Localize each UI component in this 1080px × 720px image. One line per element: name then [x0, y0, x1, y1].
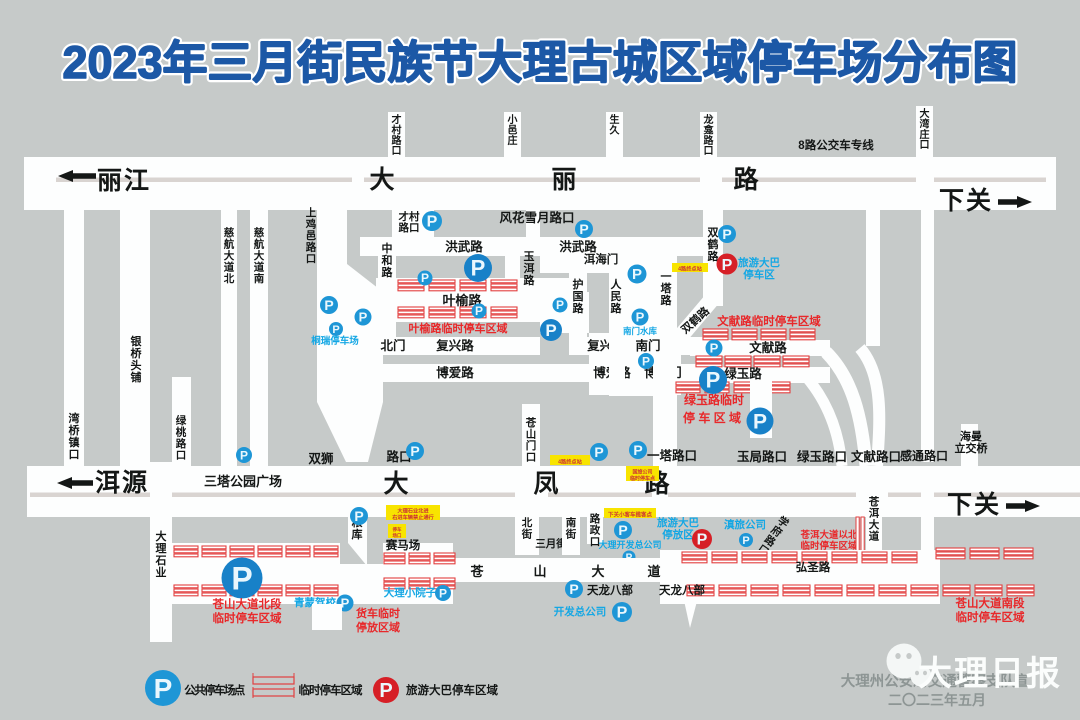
svg-text:P: P [753, 410, 767, 433]
svg-text:右进车辆禁止通行: 右进车辆禁止通行 [392, 513, 434, 521]
svg-text:人民路: 人民路 [611, 277, 623, 315]
svg-text:龙龛路口: 龙龛路口 [703, 113, 715, 157]
svg-text:大理日报: 大理日报 [918, 655, 1062, 693]
svg-text:P: P [427, 214, 438, 231]
svg-text:苍山门口: 苍山门口 [525, 416, 537, 464]
svg-text:8路公交车专线: 8路公交车专线 [798, 138, 874, 152]
svg-text:下关: 下关 [947, 491, 1001, 519]
svg-text:停放区域: 停放区域 [356, 620, 400, 634]
svg-text:湾桥镇口: 湾桥镇口 [69, 411, 81, 461]
svg-text:玉局路口: 玉局路口 [737, 449, 787, 464]
svg-text:旅游大巴停车区域: 旅游大巴停车区域 [406, 683, 498, 697]
svg-text:复兴路: 复兴路 [435, 338, 474, 353]
svg-text:国旅公司: 国旅公司 [632, 468, 652, 475]
svg-text:弘圣路: 弘圣路 [796, 560, 831, 574]
svg-text:4路终点站: 4路终点站 [678, 265, 702, 273]
svg-text:风花雪月路口: 风花雪月路口 [499, 210, 574, 225]
svg-text:丽: 丽 [551, 166, 576, 194]
svg-text:P: P [618, 522, 627, 538]
svg-text:一塔路口: 一塔路口 [647, 448, 697, 463]
svg-text:绿桃路口: 绿桃路口 [176, 414, 187, 462]
svg-text:双鹤路: 双鹤路 [708, 226, 720, 263]
svg-text:才村路口: 才村路口 [392, 113, 403, 157]
svg-text:上鸡邑路口: 上鸡邑路口 [305, 206, 317, 265]
svg-text:二〇二三年五月: 二〇二三年五月 [888, 692, 986, 708]
svg-text:旅游大巴: 旅游大巴 [657, 516, 699, 529]
svg-text:停车区: 停车区 [743, 268, 775, 281]
svg-text:P: P [594, 444, 603, 460]
svg-text:临时停车点: 临时停车点 [630, 475, 655, 482]
svg-text:停 车 区 域: 停 车 区 域 [683, 410, 741, 425]
svg-text:P: P [742, 535, 749, 547]
svg-text:中和路: 中和路 [382, 241, 394, 279]
svg-text:路口: 路口 [399, 221, 420, 234]
svg-text:一塔路: 一塔路 [661, 271, 673, 307]
svg-text:P: P [697, 532, 708, 549]
svg-text:P: P [359, 310, 368, 325]
svg-text:苍山大道南段: 苍山大道南段 [955, 596, 1025, 610]
svg-text:绿玉路: 绿玉路 [724, 366, 762, 381]
svg-text:P: P [569, 581, 578, 597]
svg-text:滇旅公司: 滇旅公司 [724, 518, 766, 531]
svg-text:慈航大道北: 慈航大道北 [224, 226, 235, 285]
svg-text:银桥头铺: 银桥头铺 [131, 334, 143, 384]
svg-text:南街: 南街 [565, 516, 577, 541]
svg-text:下关小客车揽客点: 下关小客车揽客点 [608, 510, 653, 518]
svg-text:立交桥: 立交桥 [955, 441, 989, 455]
svg-text:P: P [154, 673, 173, 704]
svg-text:P: P [722, 226, 731, 242]
svg-text:P: P [379, 680, 392, 702]
svg-text:博爱路: 博爱路 [436, 365, 474, 380]
svg-text:南门水库: 南门水库 [623, 326, 658, 336]
svg-text:北门: 北门 [380, 338, 405, 353]
svg-text:P: P [354, 508, 363, 524]
svg-text:大: 大 [591, 564, 604, 579]
svg-text:赛马场: 赛马场 [385, 538, 421, 552]
svg-text:苍洱大道以北: 苍洱大道以北 [799, 529, 858, 541]
svg-text:大湾庄口: 大湾庄口 [920, 107, 930, 151]
svg-text:货车临时: 货车临时 [355, 606, 400, 620]
svg-text:开发总公司: 开发总公司 [554, 605, 607, 618]
svg-text:P: P [636, 310, 645, 325]
svg-text:下关: 下关 [939, 187, 993, 215]
svg-text:文献路: 文献路 [749, 340, 787, 355]
svg-text:P: P [324, 297, 333, 313]
svg-text:公共停车场点: 公共停车场点 [184, 683, 245, 697]
svg-text:P: P [240, 448, 248, 462]
svg-text:洱海门: 洱海门 [584, 252, 619, 266]
svg-text:桐瑞停车场: 桐瑞停车场 [311, 335, 359, 347]
svg-text:洱源: 洱源 [95, 469, 149, 497]
svg-text:P: P [475, 304, 483, 318]
svg-text:南门: 南门 [635, 338, 660, 353]
svg-text:P: P [556, 298, 564, 312]
svg-text:海曼: 海曼 [960, 429, 982, 443]
svg-text:玉洱路: 玉洱路 [524, 250, 536, 287]
svg-text:苍洱大道: 苍洱大道 [868, 495, 880, 543]
svg-text:P: P [642, 354, 650, 368]
svg-text:P: P [471, 256, 486, 281]
svg-text:临时停车区域: 临时停车区域 [299, 683, 363, 697]
svg-text:P: P [722, 257, 733, 274]
svg-text:绿玉路临时: 绿玉路临时 [684, 392, 744, 407]
svg-text:P: P [633, 442, 642, 458]
svg-text:P: P [341, 596, 350, 611]
svg-text:临时停车区域: 临时停车区域 [213, 611, 282, 625]
svg-text:P: P [410, 443, 419, 459]
svg-text:护国路: 护国路 [573, 277, 585, 315]
svg-text:绿玉路口: 绿玉路口 [797, 449, 847, 464]
svg-text:感通路口: 感通路口 [900, 448, 948, 463]
svg-text:2023年三月街民族节大理古城区域停车场分布图: 2023年三月街民族节大理古城区域停车场分布图 [62, 37, 1017, 88]
svg-text:P: P [439, 586, 447, 600]
svg-text:P: P [706, 368, 721, 393]
svg-text:路: 路 [733, 166, 759, 194]
svg-text:双狮: 双狮 [307, 451, 334, 466]
svg-text:道: 道 [647, 564, 660, 579]
svg-text:P: P [231, 560, 252, 596]
svg-text:P: P [421, 271, 429, 285]
svg-text:P: P [632, 266, 642, 283]
svg-text:大理小院子: 大理小院子 [384, 586, 437, 599]
svg-text:旅游大巴: 旅游大巴 [738, 256, 780, 269]
svg-text:洪武路: 洪武路 [559, 239, 597, 254]
svg-text:洪武路: 洪武路 [445, 239, 483, 254]
svg-text:大理石业: 大理石业 [155, 529, 167, 579]
svg-text:P: P [710, 341, 719, 356]
svg-text:山: 山 [533, 564, 546, 579]
svg-text:大理石业北进: 大理石业北进 [397, 506, 429, 514]
svg-text:停放区: 停放区 [662, 528, 694, 541]
svg-text:P: P [332, 324, 339, 336]
svg-text:大理开发总公司: 大理开发总公司 [598, 539, 661, 550]
svg-text:大: 大 [369, 166, 394, 194]
svg-text:三塔公园广场: 三塔公园广场 [204, 474, 282, 489]
svg-text:临时停车区域: 临时停车区域 [956, 610, 1025, 624]
svg-text:小邑庄: 小邑庄 [507, 113, 518, 147]
svg-text:文献路口: 文献路口 [851, 449, 901, 464]
svg-text:叶榆路临时停车区域: 叶榆路临时停车区域 [409, 321, 508, 335]
svg-text:文献路临时停车区域: 文献路临时停车区域 [717, 314, 821, 328]
svg-text:天龙八部: 天龙八部 [587, 583, 633, 597]
svg-text:P: P [579, 221, 588, 237]
svg-text:场口: 场口 [393, 532, 402, 539]
svg-text:P: P [545, 321, 556, 340]
svg-text:丽江: 丽江 [97, 167, 151, 195]
svg-text:停车: 停车 [393, 526, 402, 533]
svg-text:4路终点站: 4路终点站 [558, 457, 582, 465]
svg-text:北街: 北街 [521, 516, 533, 541]
svg-text:生久: 生久 [609, 113, 621, 136]
svg-text:慈航大道南: 慈航大道南 [254, 226, 265, 285]
svg-text:P: P [617, 605, 628, 622]
svg-text:天龙八部: 天龙八部 [659, 583, 705, 597]
svg-text:苍: 苍 [469, 564, 484, 579]
svg-text:大: 大 [383, 470, 408, 498]
svg-text:苍山大道北段: 苍山大道北段 [212, 597, 282, 611]
svg-text:凤: 凤 [533, 470, 558, 498]
